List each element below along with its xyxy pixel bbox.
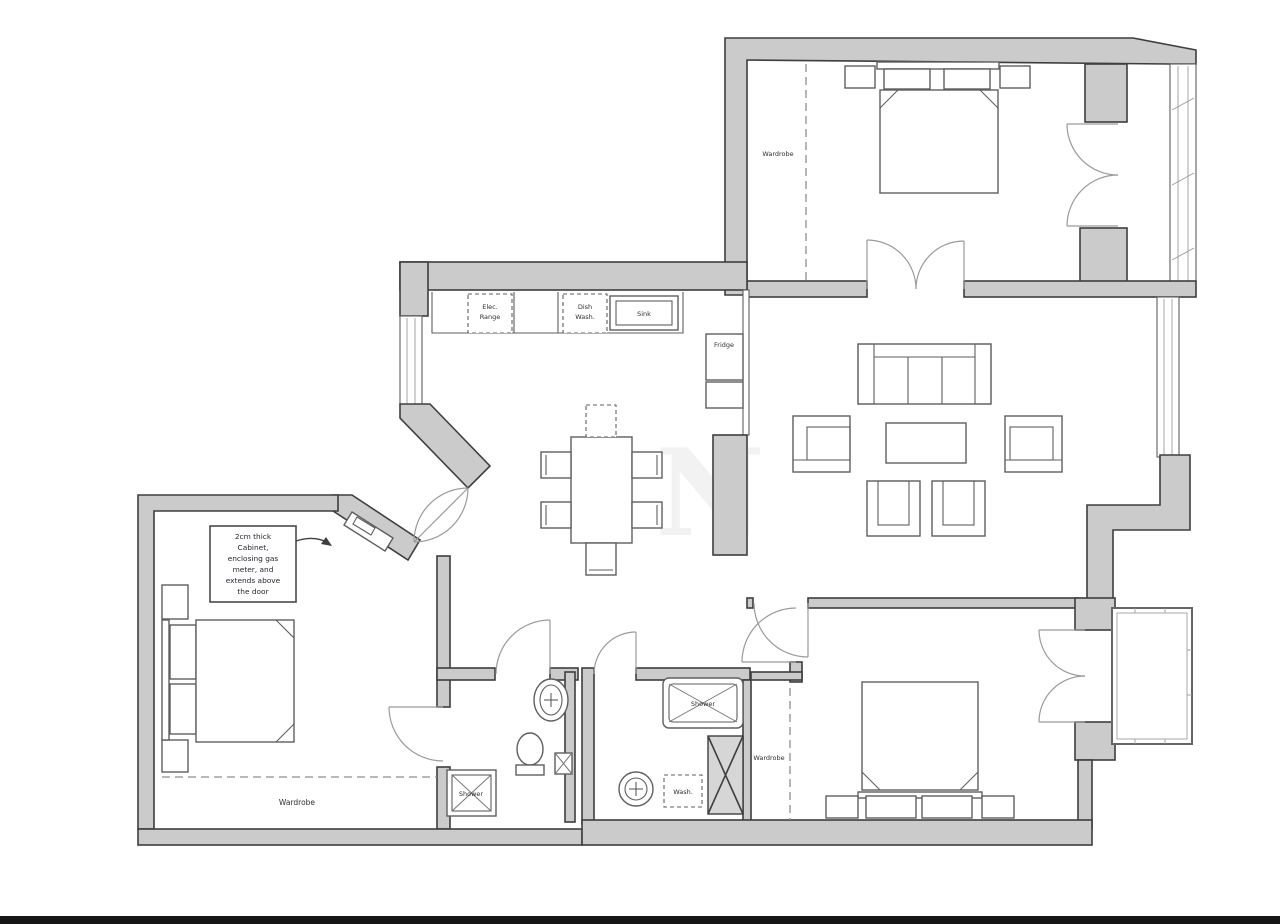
bed-icon-br xyxy=(826,682,1014,818)
washbasin-icon-ensuite xyxy=(534,679,568,721)
annotation-line-4: meter, and xyxy=(233,565,274,574)
duct-icon-large xyxy=(708,736,743,814)
double-door-bedroom-tr xyxy=(867,240,964,289)
annotation-line-1: 2cm thick xyxy=(235,532,272,541)
wall-bath2-left xyxy=(582,668,594,824)
french-door-bedroom-tr xyxy=(1067,124,1118,226)
floor-plan-page: N xyxy=(0,0,1280,924)
wall-bottom-right xyxy=(582,820,1092,845)
sink-label: Sink xyxy=(637,310,651,318)
door-living-hall xyxy=(754,603,808,657)
room-bedroom-top-right: Wardrobe xyxy=(762,62,1030,281)
wall-bottom-left xyxy=(138,829,582,845)
wardrobe-label-tr: Wardrobe xyxy=(762,150,793,158)
wall-kitchen-left-corner xyxy=(400,262,428,316)
dishwasher-label-2: Wash. xyxy=(575,313,595,321)
annotation-line-5: extends above xyxy=(226,576,281,585)
washing-machine-icon: Wash. xyxy=(664,775,702,807)
toilet-icon xyxy=(516,733,544,775)
wardrobe-label-br: Wardrobe xyxy=(753,754,784,762)
range-label-1: Elec. xyxy=(482,303,498,311)
shower-icon-ensuite: Shower xyxy=(447,770,496,816)
shower-icon-room: Shower xyxy=(663,678,743,728)
wall-living-bottom xyxy=(808,598,1078,608)
wall-pillar-tr-upper xyxy=(1085,64,1127,122)
range-label-2: Range xyxy=(480,313,501,321)
annotation-line-6: the door xyxy=(237,587,269,596)
room-bedroom-bottom-right: Wardrobe xyxy=(753,682,1014,820)
wall-living-bottom-stub xyxy=(747,598,753,608)
wall-bedroom-tr-bottom-left xyxy=(747,281,867,297)
terrace xyxy=(1112,608,1192,744)
wall-pillar-tr-lower xyxy=(1080,228,1127,284)
wardrobe-label-left: Wardrobe xyxy=(279,798,316,807)
shower-label-room: Shower xyxy=(691,700,716,708)
coffee-table-icon xyxy=(886,423,966,463)
room-bathroom-ensuite: Shower xyxy=(447,679,572,816)
dishwasher-label-1: Dish xyxy=(578,303,592,311)
bed-icon-left xyxy=(162,585,294,772)
room-living xyxy=(793,344,1062,536)
sofa-icon xyxy=(858,344,991,404)
wall-fridge-nook xyxy=(743,290,749,435)
washbasin-icon-room xyxy=(619,772,653,806)
window-bedroom-tr-right xyxy=(1170,64,1196,295)
wall-entry-diagonal-upper xyxy=(400,404,490,488)
wall-bath2-right xyxy=(743,680,751,822)
window-kitchen-left xyxy=(400,316,422,406)
wall-bedroom-tr-bottom-right xyxy=(964,281,1196,297)
sink-icon: Sink xyxy=(610,296,678,330)
wall-pillar-br-lower xyxy=(1075,722,1115,760)
wall-kitchen-top xyxy=(400,262,747,290)
wall-bedroom-br-right xyxy=(1078,760,1092,829)
wall-bath1-top-left xyxy=(437,668,495,680)
door-bath2 xyxy=(594,632,636,674)
floor-plan-drawing: N xyxy=(0,0,1280,924)
french-door-bedroom-br xyxy=(1039,630,1085,722)
wall-dining-living xyxy=(713,435,747,555)
fridge-label: Fridge xyxy=(714,341,734,349)
armchair-right-icon xyxy=(1005,416,1062,472)
wash-label: Wash. xyxy=(673,788,693,796)
wall-nook-top xyxy=(751,672,802,680)
chair-bottom-right-icon xyxy=(932,481,985,536)
range-icon: Elec. Range xyxy=(468,294,512,333)
dining-table-icon xyxy=(541,405,662,575)
annotation-line-2: Cabinet, xyxy=(238,543,269,552)
annotation-arrowhead xyxy=(321,537,332,546)
bed-icon-tr xyxy=(845,62,1030,193)
wall-pillar-br-upper xyxy=(1075,598,1115,630)
annotation-box: 2cm thick Cabinet, enclosing gas meter, … xyxy=(210,526,332,602)
armchair-left-icon xyxy=(793,416,850,472)
annotation-line-3: enclosing gas xyxy=(228,554,279,563)
fridge-icon: Fridge xyxy=(706,334,743,408)
room-bedroom-left: 2cm thick Cabinet, enclosing gas meter, … xyxy=(162,512,437,807)
watermark-letter: N xyxy=(655,423,765,564)
window-living-right xyxy=(1157,297,1179,457)
wall-living-right-step xyxy=(1087,455,1190,603)
entry-door xyxy=(414,488,468,542)
bottom-bar xyxy=(0,916,1280,924)
room-shower-room: Shower Wash. xyxy=(619,678,743,814)
door-bath1 xyxy=(496,620,550,674)
chair-bottom-left-icon xyxy=(867,481,920,536)
wall-bedroom-left-right-upper xyxy=(437,556,450,707)
shower-label-ensuite: Shower xyxy=(459,790,484,798)
duct-icon-small xyxy=(555,753,572,774)
door-bedroom-left xyxy=(389,707,443,761)
dishwasher-icon: Dish Wash. xyxy=(563,294,607,333)
